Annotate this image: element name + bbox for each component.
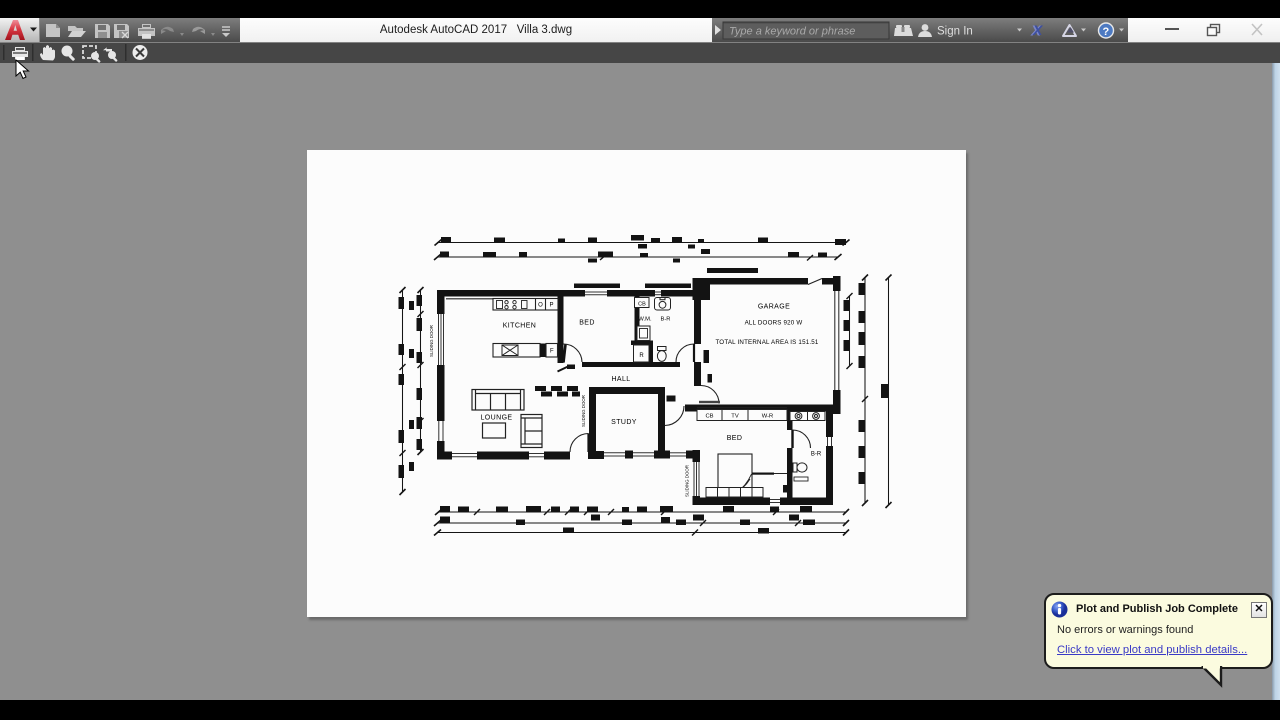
svg-text:X: X — [1032, 22, 1044, 38]
svg-text:SLIDING DOOR: SLIDING DOOR — [685, 465, 690, 497]
svg-text:BED: BED — [727, 435, 743, 442]
svg-text:W.M.: W.M. — [638, 317, 652, 323]
svg-text:STUDY: STUDY — [611, 419, 637, 426]
svg-text:Type a keyword or phrase: Type a keyword or phrase — [729, 26, 855, 38]
svg-text:B-R: B-R — [661, 317, 671, 323]
svg-text:P: P — [549, 303, 553, 309]
svg-text:KITCHEN: KITCHEN — [503, 323, 537, 330]
svg-text:HALL: HALL — [611, 376, 630, 383]
svg-text:R: R — [639, 353, 644, 359]
svg-text:W-R: W-R — [762, 414, 773, 420]
svg-text:ALL DOORS 920 W: ALL DOORS 920 W — [745, 320, 803, 327]
svg-text:CB: CB — [638, 301, 646, 307]
svg-text:TOTAL INTERNAL AREA IS 151.51: TOTAL INTERNAL AREA IS 151.51 — [715, 339, 818, 346]
svg-text:B-R: B-R — [811, 452, 822, 458]
svg-text:TV: TV — [731, 414, 739, 420]
svg-text:F: F — [550, 349, 554, 355]
svg-text:SLIDING DOOR: SLIDING DOOR — [581, 395, 586, 427]
svg-text:Sign In: Sign In — [937, 26, 973, 38]
svg-text:O: O — [538, 303, 543, 309]
svg-text:LOUNGE: LOUNGE — [481, 415, 513, 422]
svg-text:BED: BED — [579, 320, 595, 327]
svg-text:SLIDING DOOR: SLIDING DOOR — [429, 325, 434, 357]
svg-text:CB: CB — [705, 414, 713, 420]
svg-text:?: ? — [1103, 26, 1110, 38]
svg-text:GARAGE: GARAGE — [758, 304, 790, 311]
